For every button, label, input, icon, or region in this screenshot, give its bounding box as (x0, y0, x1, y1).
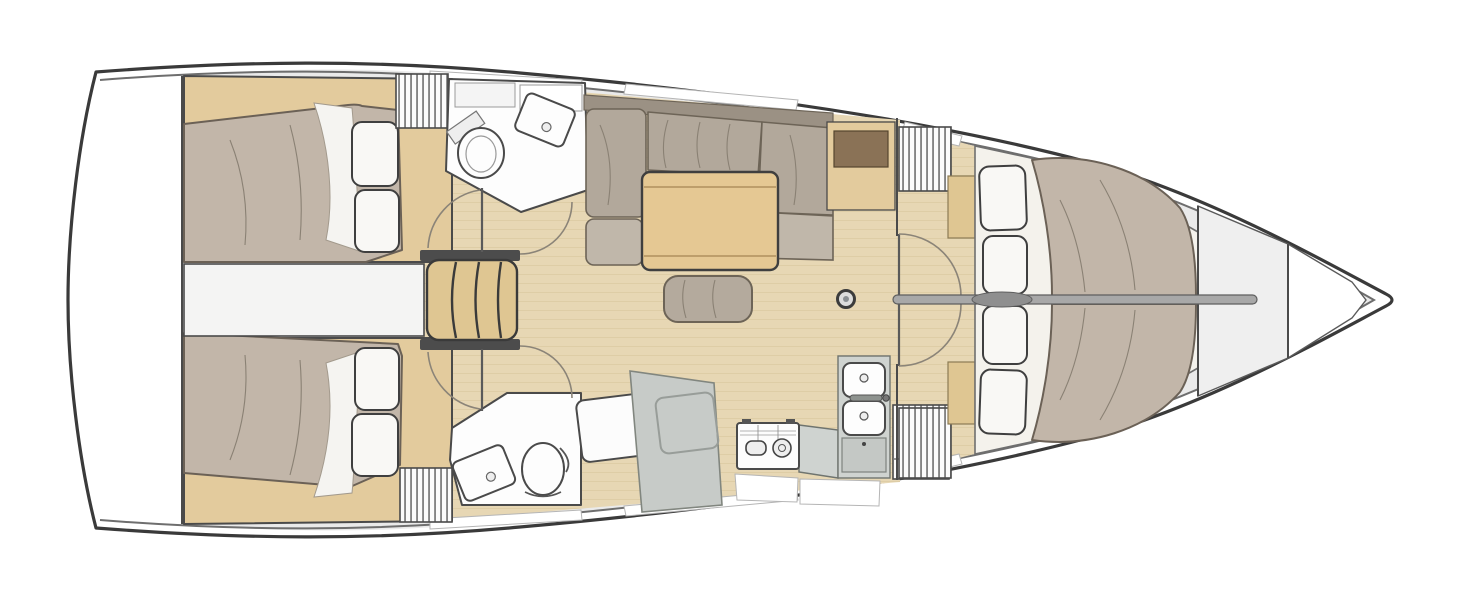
aft-cabin-port (184, 74, 452, 262)
yacht-floorplan (0, 0, 1458, 600)
pillow (983, 306, 1027, 364)
galley-counter (799, 425, 838, 478)
companionway-stairs (420, 250, 520, 350)
pillow (979, 369, 1027, 435)
faucet-lever (883, 395, 889, 401)
floorplan-svg (0, 0, 1458, 600)
partition-bar (893, 295, 1257, 304)
chart-cabinet (827, 122, 895, 210)
pillow (979, 165, 1027, 231)
stair-steps (427, 260, 517, 340)
locker-knob (862, 442, 866, 446)
galley-lower-locker (800, 479, 880, 506)
sink-drain (860, 374, 868, 382)
head-shelf (455, 83, 515, 107)
mast-post-core (843, 296, 849, 302)
burner-left (746, 441, 766, 455)
sink-unit (838, 356, 890, 478)
stove (737, 419, 799, 469)
faucet (850, 395, 882, 401)
hanging-locker-slats (899, 408, 951, 478)
partition-boss (972, 292, 1032, 307)
pillow (352, 122, 398, 186)
shower-stall (630, 371, 722, 512)
settee-cushion-left (586, 109, 646, 217)
stove-handle (786, 419, 795, 424)
burner-right (773, 439, 791, 457)
galley-lower-locker (735, 474, 798, 502)
hanging-locker-slats (396, 74, 448, 128)
vberth-mattress-starboard (1032, 304, 1196, 442)
toilet (522, 443, 564, 495)
aft-cabin-starboard (184, 333, 452, 524)
hanging-locker-slats (400, 468, 452, 522)
engine-compartment (184, 264, 424, 336)
stove-handle (742, 419, 751, 424)
pillow (352, 414, 398, 476)
seat-bench (948, 176, 975, 238)
seat-bench (948, 362, 975, 424)
pillow (983, 236, 1027, 294)
vberth-mattress-port (1032, 158, 1196, 296)
hanging-locker-slats (899, 127, 951, 191)
sink-drain (860, 412, 868, 420)
cabinet-dark-top (834, 131, 888, 167)
pillow (355, 190, 399, 252)
settee-cushion-left-low (586, 219, 643, 265)
ottoman (664, 276, 752, 322)
pillow (355, 348, 399, 410)
